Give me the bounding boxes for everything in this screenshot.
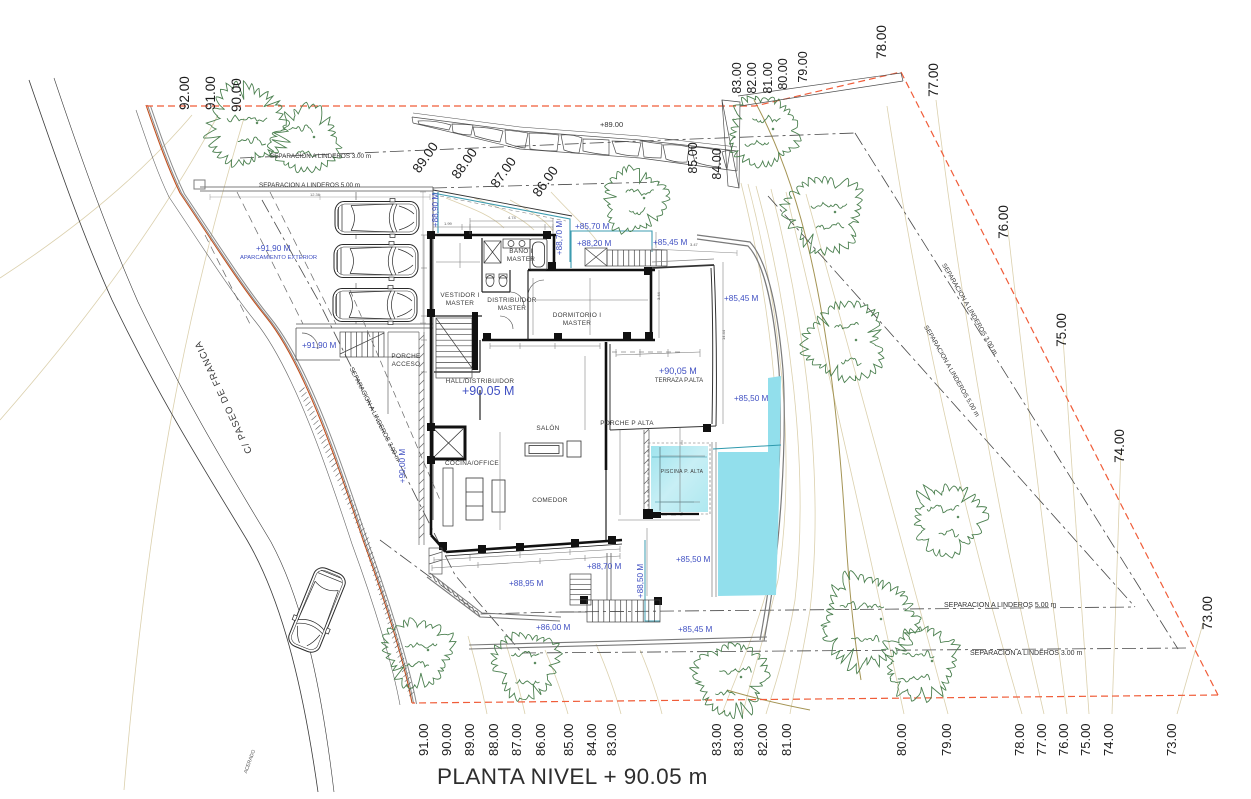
svg-text:+88,95 M: +88,95 M (509, 579, 544, 588)
svg-text:4.74: 4.74 (508, 215, 517, 220)
svg-text:MASTER: MASTER (498, 305, 527, 312)
svg-text:86.00: 86.00 (533, 723, 548, 756)
svg-text:76.00: 76.00 (1056, 723, 1071, 756)
svg-text:88.00: 88.00 (486, 723, 501, 756)
svg-text:80.00: 80.00 (776, 58, 790, 89)
svg-text:90.00: 90.00 (439, 723, 454, 756)
svg-text:+88,90 M: +88,90 M (431, 193, 440, 228)
svg-text:BAÑO I: BAÑO I (509, 246, 532, 255)
svg-text:SEPARACION A LINDEROS 3.00 m: SEPARACION A LINDEROS 3.00 m (970, 650, 1082, 657)
svg-text:12.36: 12.36 (310, 192, 321, 197)
svg-text:+91,90 M: +91,90 M (302, 341, 337, 350)
svg-text:82.00: 82.00 (745, 62, 759, 93)
svg-text:92.00: 92.00 (177, 76, 192, 110)
svg-text:83.00: 83.00 (604, 723, 619, 756)
svg-text:PISCINA P. ALTA: PISCINA P. ALTA (661, 469, 704, 475)
svg-text:83.00: 83.00 (709, 723, 724, 756)
svg-text:75.00: 75.00 (1054, 313, 1069, 347)
svg-text:81.00: 81.00 (761, 62, 775, 93)
svg-text:79.00: 79.00 (939, 723, 954, 756)
svg-text:COMEDOR: COMEDOR (532, 497, 568, 504)
svg-text:+85,45 M: +85,45 M (653, 238, 688, 247)
svg-text:ACCESO: ACCESO (392, 361, 421, 368)
svg-text:COCINA/OFFICE: COCINA/OFFICE (445, 460, 499, 467)
svg-text:+85,70 M: +85,70 M (575, 222, 610, 231)
svg-text:84.00: 84.00 (710, 148, 724, 179)
svg-text:+85,45 M: +85,45 M (678, 625, 713, 634)
svg-text:1.99: 1.99 (444, 221, 453, 226)
svg-text:+88,70 M: +88,70 M (555, 221, 564, 256)
svg-text:VESTIDOR I: VESTIDOR I (440, 292, 479, 299)
svg-text:SEPARACION A LINDEROS 5.00 m: SEPARACION A LINDEROS 5.00 m (259, 182, 360, 189)
svg-text:TERRAZA P.ALTA: TERRAZA P.ALTA (655, 378, 703, 384)
svg-text:83.00: 83.00 (731, 723, 746, 756)
svg-text:+91,90 M: +91,90 M (256, 244, 291, 253)
svg-text:DISTRIBUIDOR: DISTRIBUIDOR (487, 297, 536, 304)
svg-text:SEPARACION A LINDEROS 3.00 m: SEPARACION A LINDEROS 3.00 m (270, 153, 371, 160)
svg-text:89.00: 89.00 (462, 723, 477, 756)
svg-text:78.00: 78.00 (1012, 723, 1027, 756)
svg-text:PORCHE P ALTA: PORCHE P ALTA (600, 420, 654, 427)
svg-text:3.44: 3.44 (656, 291, 661, 300)
svg-text:+90.05 M: +90.05 M (462, 384, 514, 398)
svg-text:SEPARACION A LINDEROS 5.00 m: SEPARACION A LINDEROS 5.00 m (944, 602, 1056, 609)
svg-text:91.00: 91.00 (203, 76, 218, 110)
svg-text:90.00: 90.00 (229, 78, 244, 112)
svg-text:+89.00: +89.00 (600, 120, 623, 129)
svg-text:+88,70 M: +88,70 M (587, 562, 622, 571)
svg-text:91.00: 91.00 (416, 723, 431, 756)
svg-text:+90,00 M: +90,00 M (398, 449, 407, 484)
svg-text:+88,20 M: +88,20 M (577, 239, 612, 248)
svg-text:+88,50 M: +88,50 M (636, 564, 645, 599)
svg-text:76.00: 76.00 (996, 205, 1011, 239)
svg-text:MASTER: MASTER (446, 300, 475, 307)
svg-text:79.00: 79.00 (796, 51, 810, 82)
svg-text:SALÓN: SALÓN (536, 423, 559, 432)
svg-text:+85,50 M: +85,50 M (676, 555, 711, 564)
svg-text:81.00: 81.00 (779, 723, 794, 756)
svg-text:75.00: 75.00 (1078, 723, 1093, 756)
svg-text:DORMITORIO I: DORMITORIO I (553, 312, 602, 319)
svg-text:+90,05 M: +90,05 M (659, 366, 697, 376)
svg-text:73.00: 73.00 (1164, 723, 1179, 756)
svg-text:+85,45 M: +85,45 M (724, 294, 759, 303)
svg-text:87.00: 87.00 (509, 723, 524, 756)
svg-text:77.00: 77.00 (1034, 723, 1049, 756)
svg-text:APARCAMIENTO EXTERIOR: APARCAMIENTO EXTERIOR (240, 255, 317, 261)
svg-text:84.00: 84.00 (584, 723, 599, 756)
svg-text:85.00: 85.00 (686, 142, 700, 173)
svg-text:14.44: 14.44 (721, 329, 726, 340)
svg-text:82.00: 82.00 (755, 723, 770, 756)
svg-text:MASTER: MASTER (563, 320, 592, 327)
svg-text:PLANTA NIVEL + 90.05 m: PLANTA NIVEL + 90.05 m (437, 764, 708, 789)
svg-text:+86,00 M: +86,00 M (536, 623, 571, 632)
svg-text:+85,50 M: +85,50 M (734, 394, 769, 403)
svg-text:74.00: 74.00 (1101, 723, 1116, 756)
svg-text:3.47: 3.47 (690, 242, 699, 247)
svg-text:MASTER: MASTER (507, 256, 536, 263)
svg-text:80.00: 80.00 (894, 723, 909, 756)
svg-text:74.00: 74.00 (1112, 429, 1127, 463)
svg-text:83.00: 83.00 (730, 62, 744, 93)
svg-text:85.00: 85.00 (561, 723, 576, 756)
svg-text:73.00: 73.00 (1200, 596, 1215, 630)
svg-text:77.00: 77.00 (926, 63, 941, 97)
svg-text:78.00: 78.00 (874, 25, 889, 59)
svg-text:PORCHE: PORCHE (391, 353, 420, 360)
